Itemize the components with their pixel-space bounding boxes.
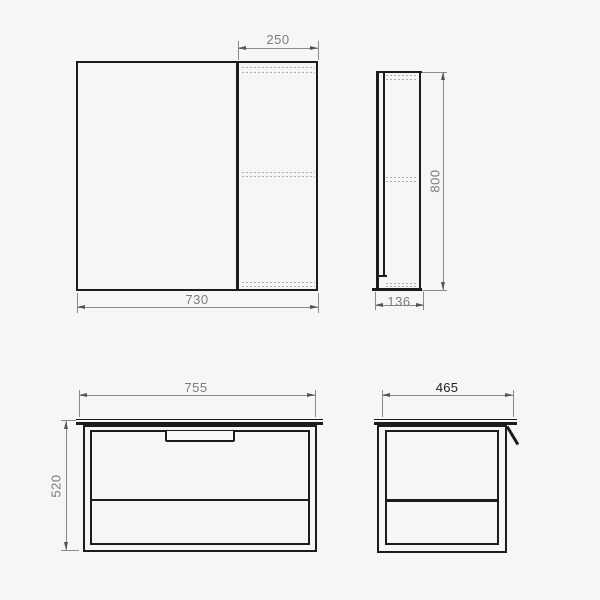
countertop-top-line bbox=[76, 419, 323, 421]
hidden-shelf-line bbox=[242, 176, 315, 177]
dimension-line bbox=[443, 72, 444, 290]
arrowhead-right-icon bbox=[310, 305, 318, 309]
vanity-front-inner-frame bbox=[90, 430, 310, 545]
arrowhead-right-icon bbox=[505, 393, 513, 397]
extension-line bbox=[423, 292, 424, 310]
mirror-side-door-bottom bbox=[376, 275, 387, 278]
arrowhead-right-icon bbox=[307, 393, 315, 397]
hidden-shelf-line bbox=[386, 283, 417, 284]
mirror-side-bottom-edge bbox=[372, 288, 422, 291]
arrowhead-down-icon bbox=[64, 542, 68, 550]
hidden-shelf-line bbox=[386, 181, 417, 182]
hidden-shelf-line bbox=[242, 67, 315, 68]
arrowhead-left-icon bbox=[382, 393, 390, 397]
vanity-side-inner-frame bbox=[385, 430, 499, 546]
dimension-label-depth: 136 bbox=[387, 295, 410, 308]
hidden-shelf-line bbox=[386, 79, 417, 80]
countertop-top-line bbox=[374, 419, 518, 421]
arrowhead-left-icon bbox=[238, 46, 246, 50]
extension-line bbox=[77, 293, 78, 313]
arrowhead-left-icon bbox=[375, 303, 383, 307]
extension-line bbox=[318, 293, 319, 313]
mirror-side-back-edge bbox=[419, 71, 422, 291]
dimension-label-door-width: 250 bbox=[266, 33, 289, 46]
arrowhead-left-icon bbox=[79, 393, 87, 397]
hidden-shelf-line bbox=[242, 282, 315, 283]
dimension-label-height: 800 bbox=[429, 169, 442, 192]
dimension-line bbox=[77, 307, 318, 308]
dimension-line bbox=[382, 395, 513, 396]
arrowhead-up-icon bbox=[441, 72, 445, 80]
dimension-label-total-width: 730 bbox=[185, 293, 208, 306]
dimension-label-depth: 465 bbox=[436, 381, 459, 394]
arrowhead-left-icon bbox=[77, 305, 85, 309]
drawer-handle bbox=[165, 430, 235, 442]
hidden-shelf-line bbox=[242, 172, 315, 173]
mirror-side-door-back-line bbox=[383, 73, 386, 277]
arrowhead-up-icon bbox=[64, 421, 68, 429]
extension-line bbox=[238, 41, 239, 60]
extension-line bbox=[375, 292, 376, 310]
drawer-divider bbox=[385, 499, 499, 502]
handle-profile-mark bbox=[506, 425, 519, 445]
hidden-shelf-line bbox=[386, 75, 417, 76]
arrowhead-down-icon bbox=[441, 282, 445, 290]
extension-line bbox=[318, 41, 319, 60]
dimension-label-height: 520 bbox=[50, 474, 63, 497]
mirror-side-door-face bbox=[376, 71, 379, 291]
drawer-divider bbox=[90, 499, 310, 502]
technical-drawing-canvas: 250 730 800 136 bbox=[0, 0, 600, 600]
dimension-line bbox=[79, 395, 315, 396]
hidden-shelf-line bbox=[242, 72, 315, 73]
arrowhead-right-icon bbox=[416, 303, 424, 307]
mirror-front-door-divider bbox=[236, 61, 239, 291]
dimension-line bbox=[238, 48, 318, 49]
hidden-shelf-line bbox=[242, 286, 315, 287]
arrowhead-right-icon bbox=[310, 46, 318, 50]
hidden-shelf-line bbox=[386, 177, 417, 178]
hidden-shelf-line bbox=[386, 286, 417, 287]
dimension-label-width: 755 bbox=[184, 381, 207, 394]
dimension-line bbox=[66, 421, 67, 551]
